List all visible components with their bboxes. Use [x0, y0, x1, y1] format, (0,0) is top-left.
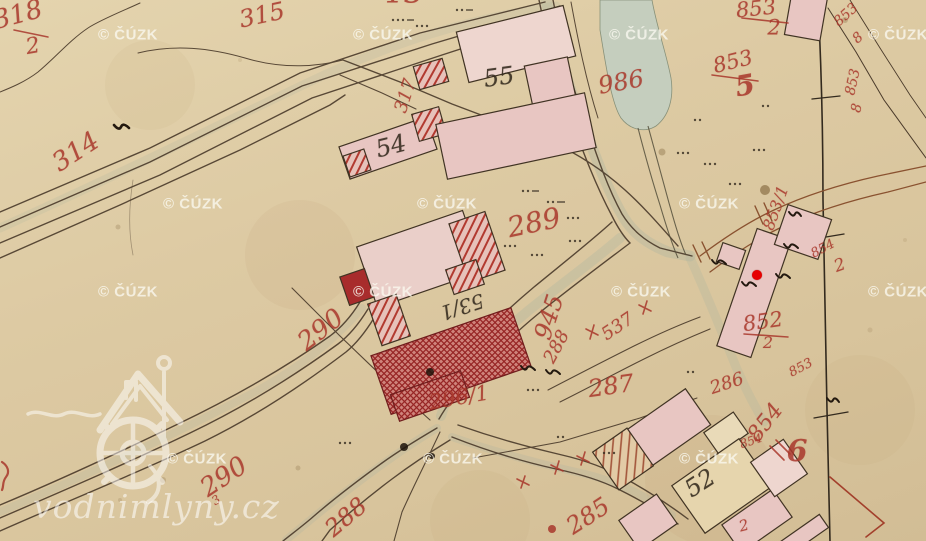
selected-mill-marker[interactable]: [752, 270, 762, 280]
vodnimlyny-logo-text: vodnimlyny.cz: [33, 487, 280, 526]
cuzk-watermark: © ČÚZK: [98, 284, 158, 301]
cuzk-watermark: © ČÚZK: [423, 451, 483, 468]
mill-hatched-west-wing: [368, 294, 411, 345]
building-55-lower: [436, 93, 596, 179]
parcel-number-red: 986: [596, 66, 645, 98]
cadastral-map-canvas[interactable]: 3182315314133179868532853585388538289853…: [0, 0, 926, 541]
parcel-number-red: 2: [767, 18, 780, 39]
parcel-number-red: 287: [587, 371, 636, 401]
cuzk-watermark: © ČÚZK: [167, 451, 227, 468]
building-853-1-annex: [716, 243, 745, 270]
parcel-number-red: 6: [787, 437, 808, 467]
cuzk-watermark: © ČÚZK: [868, 284, 926, 301]
cuzk-watermark: © ČÚZK: [417, 196, 477, 213]
cuzk-watermark: © ČÚZK: [163, 196, 223, 213]
building-number-black: 55: [482, 63, 516, 91]
top-right-building: [784, 0, 827, 41]
building-number-black: 54: [373, 131, 408, 162]
vodnimlyny-logo-icon: [28, 357, 180, 502]
cuzk-watermark: © ČÚZK: [98, 27, 158, 44]
cuzk-watermark: © ČÚZK: [868, 27, 926, 44]
parcel-number-red: 13: [385, 0, 423, 9]
cuzk-watermark: © ČÚZK: [679, 196, 739, 213]
cuzk-watermark: © ČÚZK: [353, 284, 413, 301]
cuzk-watermark: © ČÚZK: [679, 451, 739, 468]
parcel-number-red: 2: [763, 335, 773, 351]
cuzk-watermark: © ČÚZK: [609, 27, 669, 44]
cuzk-watermark: © ČÚZK: [353, 27, 413, 44]
cuzk-watermark: © ČÚZK: [611, 284, 671, 301]
parcel-number-red: 852: [742, 309, 785, 335]
